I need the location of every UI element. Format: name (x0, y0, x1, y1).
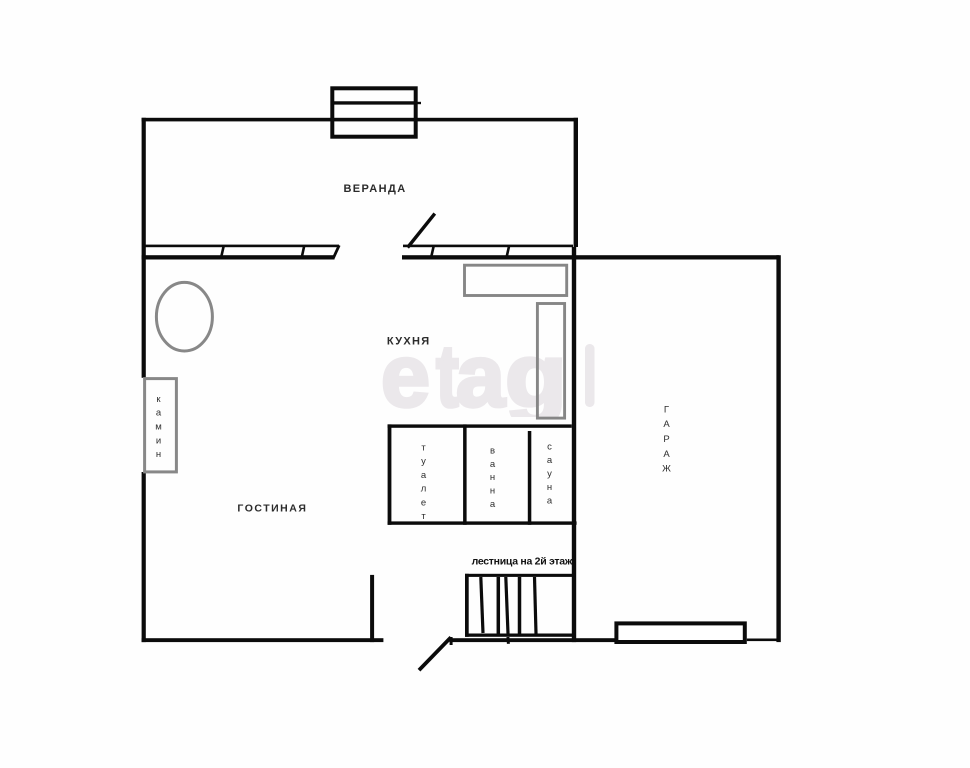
svg-text:КУХНЯ: КУХНЯ (387, 336, 431, 348)
svg-text:ванна: ванна (490, 445, 496, 510)
svg-text:a: a (456, 326, 506, 425)
svg-text:лестница на 2й этаж: лестница на 2й этаж (472, 556, 573, 568)
svg-text:ВЕРАНДА: ВЕРАНДА (343, 183, 406, 195)
svg-text:g: g (505, 327, 567, 425)
svg-text:ГОСТИНАЯ: ГОСТИНАЯ (237, 502, 307, 514)
